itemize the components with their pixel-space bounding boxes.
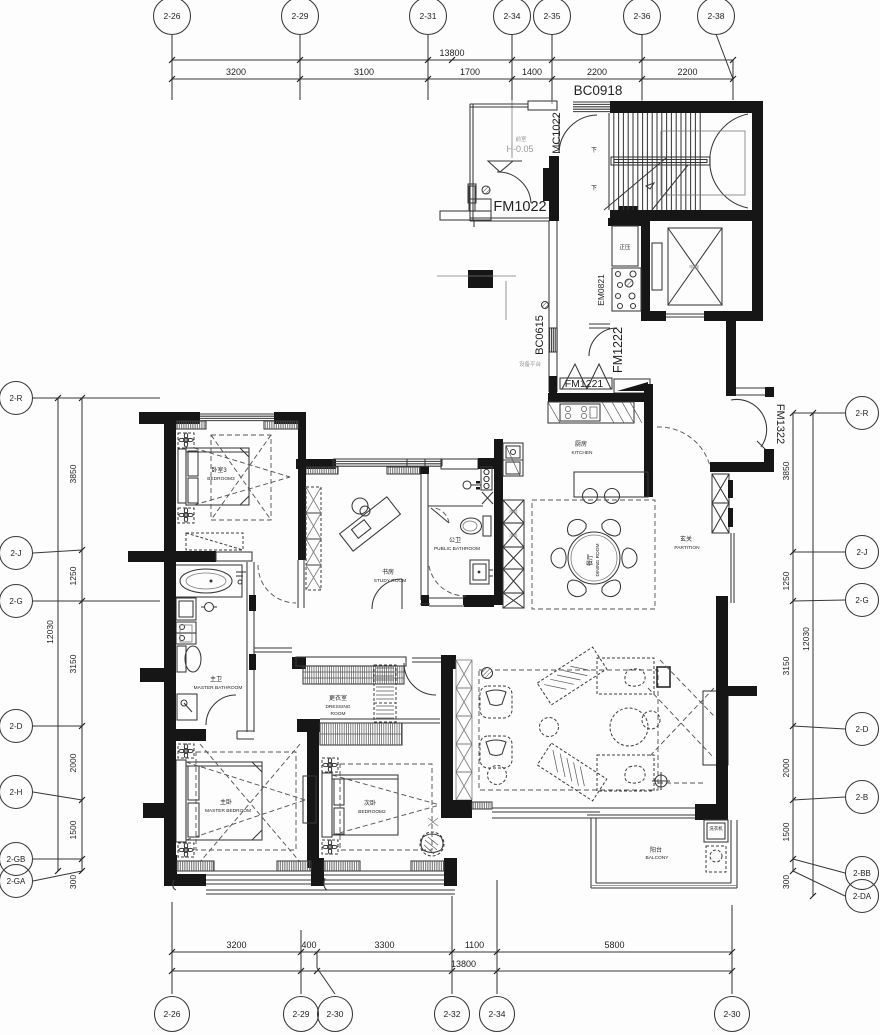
svg-text:主卫: 主卫 xyxy=(210,675,222,683)
svg-text:次卧: 次卧 xyxy=(364,799,376,807)
svg-text:FM1222: FM1222 xyxy=(611,327,625,373)
svg-text:MC1022: MC1022 xyxy=(551,112,563,154)
svg-text:2000: 2000 xyxy=(68,753,78,772)
svg-text:冰箱: 冰箱 xyxy=(509,532,518,539)
svg-text:3850: 3850 xyxy=(781,461,791,480)
svg-text:FM1221: FM1221 xyxy=(565,378,604,390)
svg-text:3100: 3100 xyxy=(354,67,374,77)
svg-text:2-J: 2-J xyxy=(10,549,21,558)
svg-text:前室: 前室 xyxy=(515,135,527,143)
svg-text:BEDROOM3: BEDROOM3 xyxy=(207,476,235,482)
svg-text:2-30: 2-30 xyxy=(723,1009,740,1019)
svg-text:卧室3: 卧室3 xyxy=(211,466,227,474)
svg-text:DRESSING: DRESSING xyxy=(325,704,350,710)
svg-text:BALCONY: BALCONY xyxy=(646,855,670,861)
svg-text:下: 下 xyxy=(591,185,597,192)
svg-text:2-DA: 2-DA xyxy=(853,892,872,901)
svg-text:1400: 1400 xyxy=(522,67,542,77)
svg-text:H-0.05: H-0.05 xyxy=(506,144,533,154)
svg-text:2-38: 2-38 xyxy=(707,11,724,21)
svg-text:12030: 12030 xyxy=(801,627,811,651)
svg-text:书房: 书房 xyxy=(382,568,394,576)
svg-text:2-29: 2-29 xyxy=(292,1009,309,1019)
svg-text:2-R: 2-R xyxy=(856,409,869,418)
svg-text:3150: 3150 xyxy=(68,654,78,673)
svg-text:BEDROOM2: BEDROOM2 xyxy=(358,809,386,815)
svg-text:1250: 1250 xyxy=(781,571,791,590)
svg-text:正压: 正压 xyxy=(619,244,631,251)
svg-text:KITCHEN: KITCHEN xyxy=(571,450,593,456)
svg-text:2000: 2000 xyxy=(781,758,791,777)
svg-text:2-32: 2-32 xyxy=(443,1009,460,1019)
svg-text:2-26: 2-26 xyxy=(163,11,180,21)
svg-text:阳台: 阳台 xyxy=(650,846,662,854)
svg-text:ROOM: ROOM xyxy=(331,711,346,717)
svg-text:2-BB: 2-BB xyxy=(853,869,871,878)
svg-text:主卧: 主卧 xyxy=(220,798,232,806)
svg-text:2-34: 2-34 xyxy=(503,11,520,21)
svg-text:DINING ROOM: DINING ROOM xyxy=(595,543,601,576)
svg-text:3850: 3850 xyxy=(68,464,78,483)
svg-text:洗衣机: 洗衣机 xyxy=(709,825,723,832)
svg-text:2-29: 2-29 xyxy=(291,11,308,21)
svg-text:2-31: 2-31 xyxy=(419,11,436,21)
svg-text:2-36: 2-36 xyxy=(633,11,650,21)
svg-text:MASTER BATHROOM: MASTER BATHROOM xyxy=(194,685,243,691)
svg-text:2-B: 2-B xyxy=(856,793,868,802)
svg-text:更衣室: 更衣室 xyxy=(329,694,347,702)
svg-text:3200: 3200 xyxy=(226,940,246,950)
svg-text:1500: 1500 xyxy=(781,822,791,841)
svg-text:餐厅: 餐厅 xyxy=(586,554,594,566)
svg-text:12030: 12030 xyxy=(45,620,55,644)
svg-text:FM1322: FM1322 xyxy=(774,404,786,444)
svg-text:1700: 1700 xyxy=(460,67,480,77)
svg-text:2-26: 2-26 xyxy=(163,1009,180,1019)
svg-text:2-R: 2-R xyxy=(10,394,23,403)
svg-text:2-G: 2-G xyxy=(9,597,22,606)
svg-text:2-34: 2-34 xyxy=(488,1009,505,1019)
svg-text:FM1022: FM1022 xyxy=(493,199,546,215)
svg-text:13800: 13800 xyxy=(451,959,476,969)
svg-text:3300: 3300 xyxy=(374,940,394,950)
svg-text:400: 400 xyxy=(301,940,316,950)
svg-text:设备平台: 设备平台 xyxy=(519,360,542,368)
svg-text:5800: 5800 xyxy=(604,940,624,950)
svg-text:3200: 3200 xyxy=(226,67,246,77)
svg-text:2200: 2200 xyxy=(677,67,697,77)
svg-text:1100: 1100 xyxy=(465,940,484,950)
svg-text:300: 300 xyxy=(781,875,791,889)
svg-text:300: 300 xyxy=(68,875,78,889)
svg-text:PUBLIC BATHROOM: PUBLIC BATHROOM xyxy=(434,546,480,552)
svg-text:厨房: 厨房 xyxy=(575,440,587,448)
svg-text:公卫: 公卫 xyxy=(449,537,461,544)
svg-text:2-J: 2-J xyxy=(856,548,867,557)
svg-text:1250: 1250 xyxy=(68,566,78,585)
svg-text:2-H: 2-H xyxy=(10,788,23,797)
svg-text:3150: 3150 xyxy=(781,656,791,675)
svg-text:PARTITION: PARTITION xyxy=(674,545,700,551)
svg-text:1500: 1500 xyxy=(68,820,78,839)
svg-text:2-D: 2-D xyxy=(10,722,23,731)
svg-text:13800: 13800 xyxy=(439,48,464,58)
svg-text:冰箱: 冰箱 xyxy=(509,508,518,515)
svg-text:BC0918: BC0918 xyxy=(574,83,623,98)
svg-text:2-35: 2-35 xyxy=(543,11,560,21)
svg-text:2-30: 2-30 xyxy=(326,1009,343,1019)
svg-text:EM0821: EM0821 xyxy=(596,274,606,306)
svg-text:MASTER BEDROOM: MASTER BEDROOM xyxy=(205,808,251,814)
svg-text:2-GB: 2-GB xyxy=(7,855,26,864)
svg-text:2-G: 2-G xyxy=(855,596,868,605)
svg-text:下: 下 xyxy=(591,147,597,154)
svg-text:2-D: 2-D xyxy=(856,725,869,734)
svg-text:电梯: 电梯 xyxy=(689,264,699,271)
svg-text:2200: 2200 xyxy=(587,67,607,77)
svg-text:玄关: 玄关 xyxy=(680,535,692,543)
svg-text:2-GA: 2-GA xyxy=(7,877,26,886)
svg-text:BC0615: BC0615 xyxy=(534,315,546,355)
